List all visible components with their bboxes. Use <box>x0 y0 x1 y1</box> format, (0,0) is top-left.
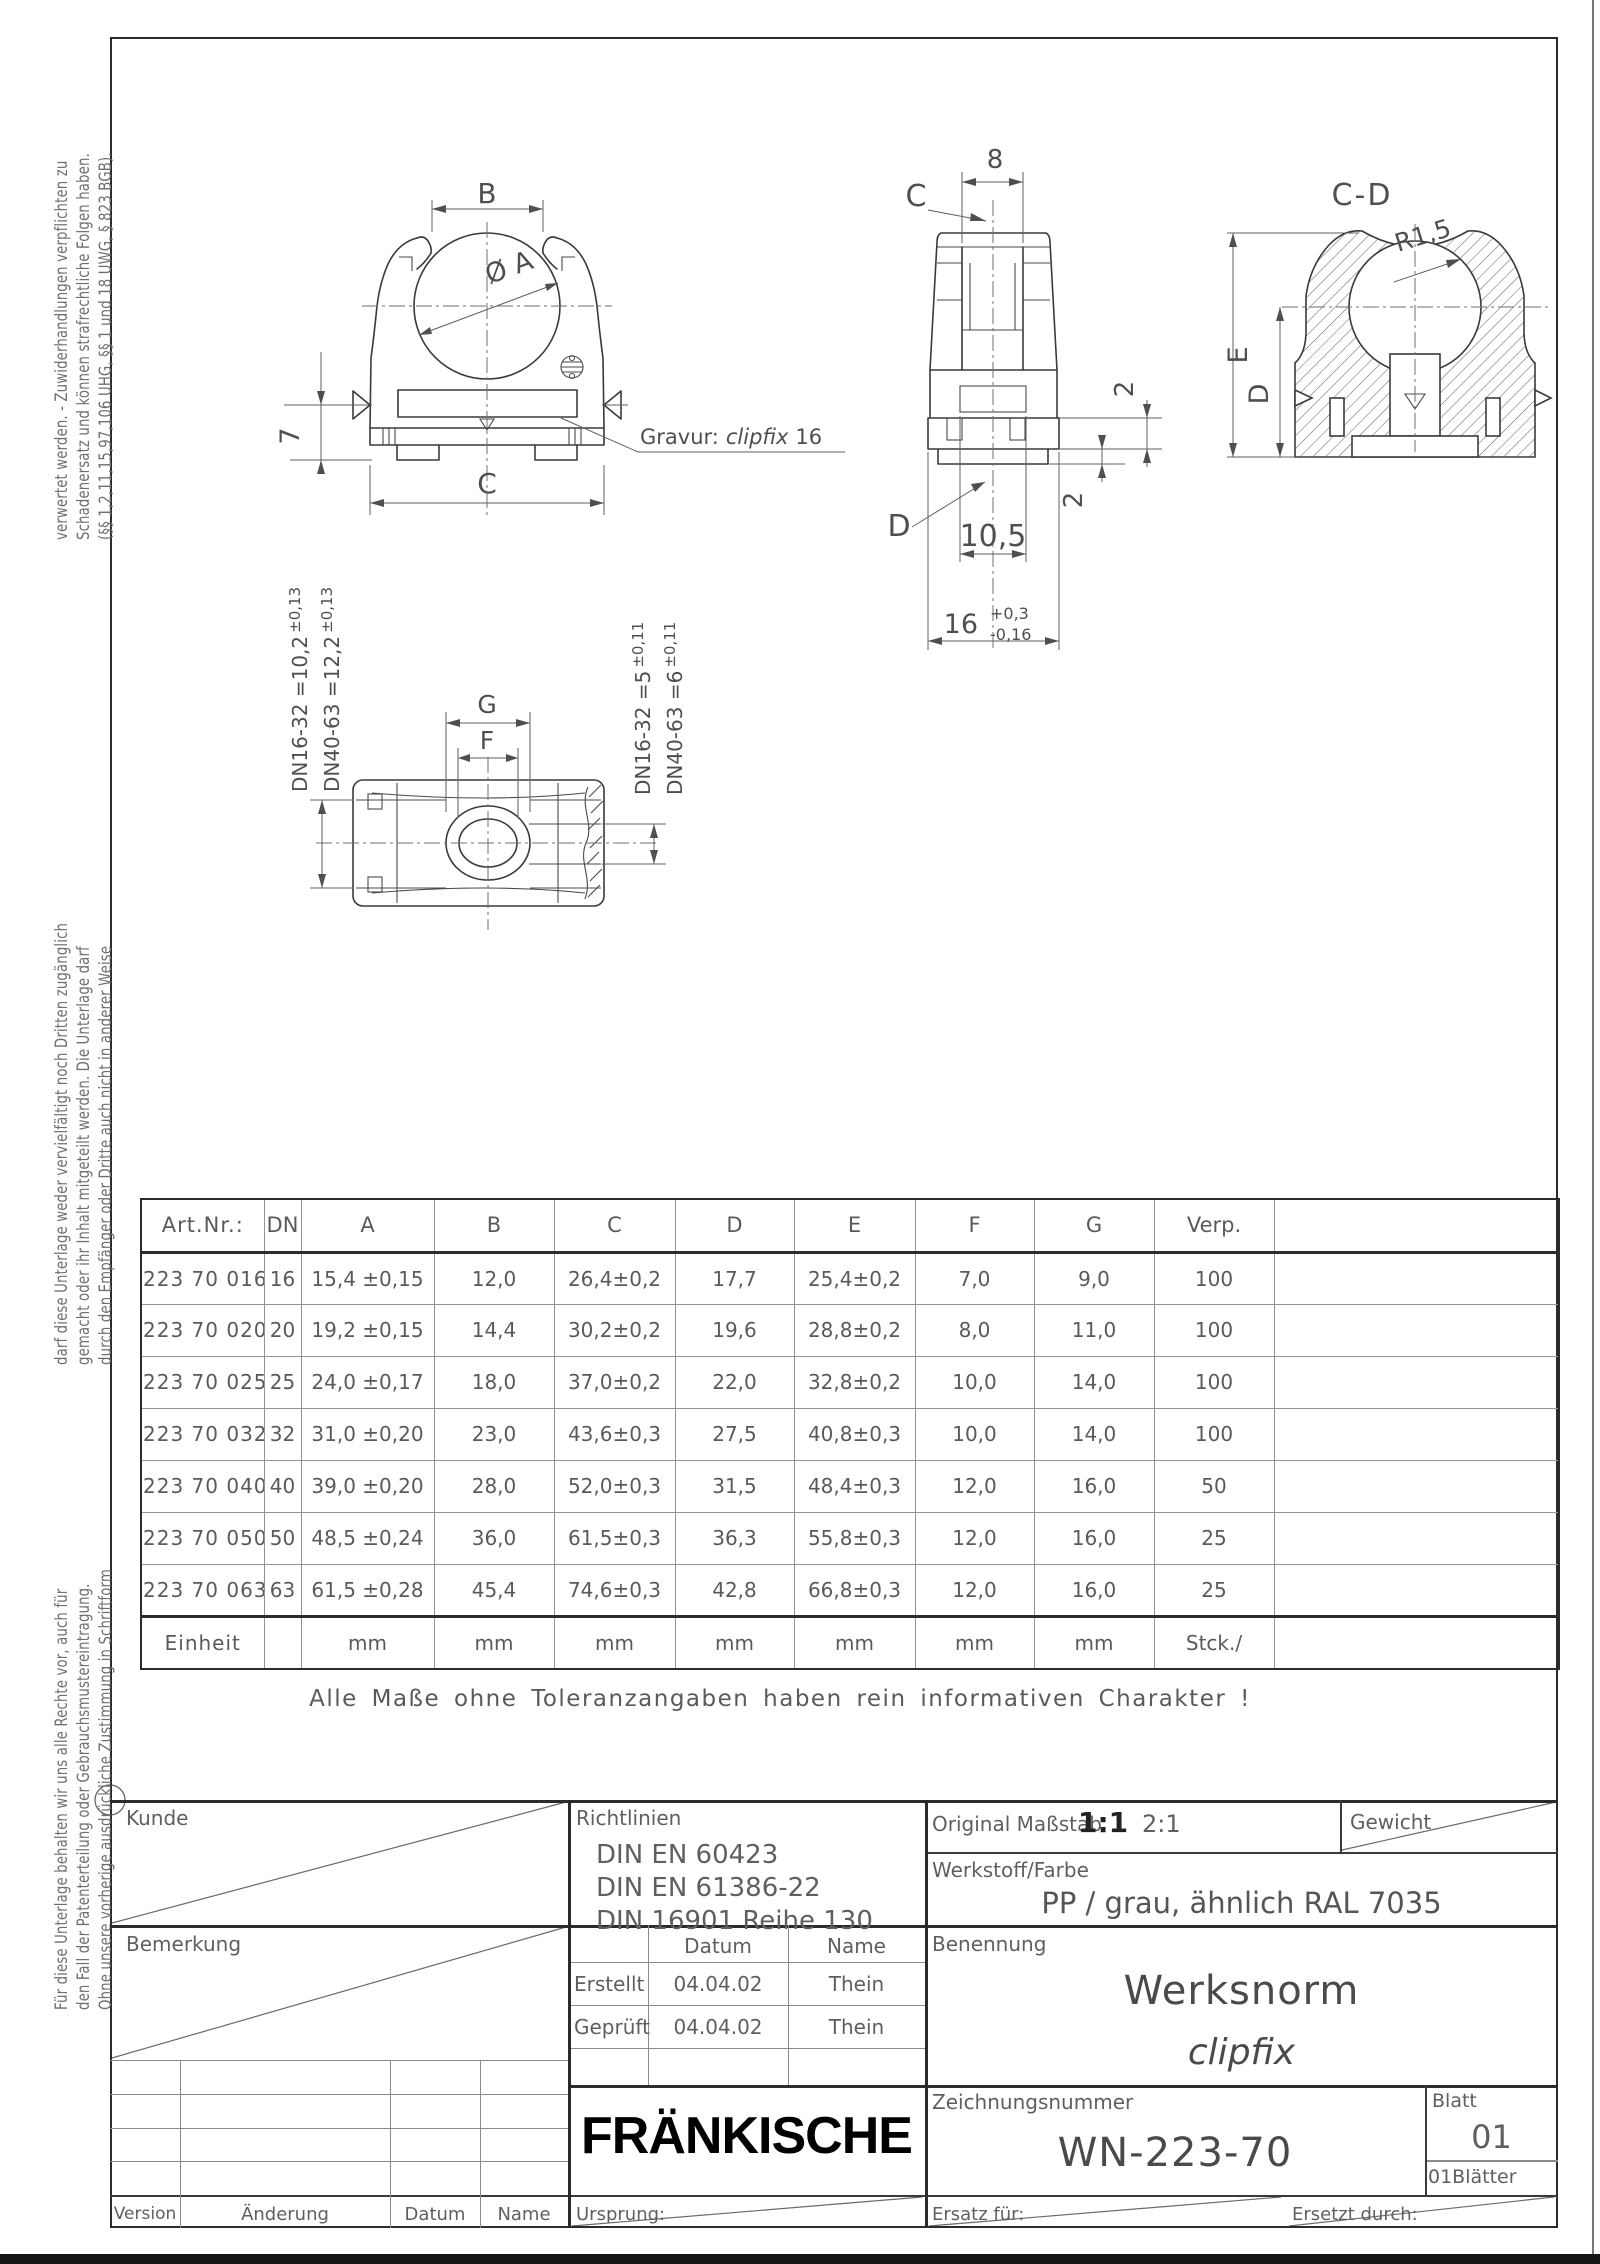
table-row: 223 70 0505048,5 ±0,2436,061,5±0,336,355… <box>141 1512 1559 1564</box>
table-cell: 50 <box>264 1512 301 1564</box>
table-header-cell: B <box>434 1199 554 1252</box>
massstab-secondary: 2:1 <box>1142 1810 1181 1838</box>
margin-note-top-line2: Schadenersatz und können strafrechtliche… <box>74 153 94 540</box>
table-cell: 223 70 050 <box>141 1512 264 1564</box>
table-cell: 16,0 <box>1034 1460 1154 1512</box>
tb-line <box>1340 1800 1342 1852</box>
table-cell: 74,6±0,3 <box>554 1564 675 1616</box>
table-cell: 223 70 016 <box>141 1252 264 1304</box>
tb-line <box>568 2005 925 2006</box>
richtlinie-din-2: DIN EN 61386-22 <box>596 1873 821 1903</box>
tb-line <box>480 2060 481 2228</box>
geprueft-datum: 04.04.02 <box>648 2015 788 2039</box>
table-cell: 14,0 <box>1034 1408 1154 1460</box>
table-cell: mm <box>554 1616 675 1669</box>
tb-line <box>110 2128 568 2129</box>
werkstoff-value: PP / grau, ähnlich RAL 7035 <box>925 1886 1558 1920</box>
table-cell: 7,0 <box>915 1252 1034 1304</box>
table-cell: 55,8±0,3 <box>794 1512 915 1564</box>
table-cell: 223 70 032 <box>141 1408 264 1460</box>
table-cell: 25 <box>264 1356 301 1408</box>
margin-note-bottom-line3: Ohne unsere vorherige ausdrückliche Zust… <box>96 1569 116 2010</box>
table-cell <box>264 1616 301 1669</box>
table-cell: 40,8±0,3 <box>794 1408 915 1460</box>
benennung-title: Werksnorm <box>925 1968 1558 2014</box>
table-cell: 14,4 <box>434 1304 554 1356</box>
tb-line <box>110 2161 568 2162</box>
table-cell: mm <box>915 1616 1034 1669</box>
table-cell: 20 <box>264 1304 301 1356</box>
name-header: Name <box>788 1934 925 1958</box>
ersetzt-label: Ersetzt durch: <box>1292 2204 1418 2225</box>
richtlinien-label: Richtlinien <box>576 1806 681 1830</box>
table-cell <box>1274 1460 1559 1512</box>
kunde-label: Kunde <box>126 1806 188 1830</box>
table-cell <box>1274 1252 1559 1304</box>
table-cell <box>1274 1512 1559 1564</box>
tb-line <box>110 2195 1558 2197</box>
table-cell: 32,8±0,2 <box>794 1356 915 1408</box>
table-cell: 32 <box>264 1408 301 1460</box>
margin-note-bottom-line1: Für diese Unterlage behalten wir uns all… <box>52 1589 72 2010</box>
aenderung-label: Änderung <box>180 2204 390 2225</box>
table-cell: 27,5 <box>675 1408 794 1460</box>
tb-line <box>1425 2160 1558 2162</box>
table-cell: 43,6±0,3 <box>554 1408 675 1460</box>
table-cell: mm <box>1034 1616 1154 1669</box>
table-cell: 12,0 <box>915 1564 1034 1616</box>
table-row: 223 70 0636361,5 ±0,2845,474,6±0,342,866… <box>141 1564 1559 1616</box>
tb-line <box>110 2060 568 2061</box>
tolerance-note: Alle Maße ohne Toleranzangaben haben rei… <box>140 1686 1420 1712</box>
tb-line <box>110 2094 568 2095</box>
benennung-label: Benennung <box>932 1932 1046 1956</box>
zeichnungsnummer-label: Zeichnungsnummer <box>932 2090 1133 2114</box>
tb-line <box>568 1962 925 1963</box>
table-cell: 66,8±0,3 <box>794 1564 915 1616</box>
table-cell: 61,5 ±0,28 <box>301 1564 434 1616</box>
table-cell: 100 <box>1154 1252 1274 1304</box>
table-cell <box>1274 1304 1559 1356</box>
table-cell: 39,0 ±0,20 <box>301 1460 434 1512</box>
tb-line <box>568 2085 1558 2088</box>
table-cell: 18,0 <box>434 1356 554 1408</box>
table-cell: 30,2±0,2 <box>554 1304 675 1356</box>
table-cell: Stck./ <box>1154 1616 1274 1669</box>
table-cell: 14,0 <box>1034 1356 1154 1408</box>
datum-label: Datum <box>390 2204 480 2225</box>
table-cell: 12,0 <box>915 1460 1034 1512</box>
table-cell: 37,0±0,2 <box>554 1356 675 1408</box>
erstellt-name: Thein <box>788 1972 925 1996</box>
bemerkung-label: Bemerkung <box>126 1932 241 1956</box>
massstab-primary: 1:1 <box>1078 1806 1128 1839</box>
table-cell: 24,0 ±0,17 <box>301 1356 434 1408</box>
table-cell: 40 <box>264 1460 301 1512</box>
table-header-cell: A <box>301 1199 434 1252</box>
zeichnungsnummer-value: WN-223-70 <box>925 2130 1425 2176</box>
table-cell: 223 70 025 <box>141 1356 264 1408</box>
table-header-cell: C <box>554 1199 675 1252</box>
table-cell: 48,4±0,3 <box>794 1460 915 1512</box>
table-cell: 8,0 <box>915 1304 1034 1356</box>
table-row: 223 70 0323231,0 ±0,2023,043,6±0,327,540… <box>141 1408 1559 1460</box>
table-cell: 19,2 ±0,15 <box>301 1304 434 1356</box>
scan-artifact-bar <box>0 2254 1600 2264</box>
table-cell: 31,5 <box>675 1460 794 1512</box>
table-row: EinheitmmmmmmmmmmmmmmStck./ <box>141 1616 1559 1669</box>
table-cell: 19,6 <box>675 1304 794 1356</box>
table-cell: 25,4±0,2 <box>794 1252 915 1304</box>
table-cell: 26,4±0,2 <box>554 1252 675 1304</box>
table-header-row: Art.Nr.:DNABCDEFGVerp. <box>141 1199 1559 1252</box>
table-cell: 25 <box>1154 1564 1274 1616</box>
table-row: 223 70 0161615,4 ±0,1512,026,4±0,217,725… <box>141 1252 1559 1304</box>
table-cell: 28,0 <box>434 1460 554 1512</box>
table-cell: 12,0 <box>915 1512 1034 1564</box>
erstellt-label: Erstellt <box>574 1972 644 1996</box>
name-label: Name <box>480 2204 568 2225</box>
table-cell: 45,4 <box>434 1564 554 1616</box>
geprueft-name: Thein <box>788 2015 925 2039</box>
table-cell: 16,0 <box>1034 1512 1154 1564</box>
table-row: 223 70 0252524,0 ±0,1718,037,0±0,222,032… <box>141 1356 1559 1408</box>
table-cell: 9,0 <box>1034 1252 1154 1304</box>
table-cell: mm <box>675 1616 794 1669</box>
tb-line <box>390 2060 391 2228</box>
table-cell: mm <box>434 1616 554 1669</box>
table-cell: 48,5 ±0,24 <box>301 1512 434 1564</box>
table-cell <box>1274 1564 1559 1616</box>
table-cell: 100 <box>1154 1304 1274 1356</box>
geprueft-label: Geprüft <box>574 2015 650 2039</box>
blatt-label: Blatt <box>1432 2090 1477 2112</box>
table-cell: 50 <box>1154 1460 1274 1512</box>
margin-note-middle-line1: darf diese Unterlage weder vervielfältig… <box>52 923 72 1365</box>
table-cell: mm <box>794 1616 915 1669</box>
table-cell: 10,0 <box>915 1408 1034 1460</box>
margin-note-top-line3: (§§ 1,2,11,15,97,106 UHG, §§ 1 und 18 UW… <box>96 152 116 540</box>
massstab-label: Original Maßstab <box>932 1812 1102 1836</box>
table-cell: 15,4 ±0,15 <box>301 1252 434 1304</box>
margin-note-middle-line2: gemacht oder ihr Inhalt mitgeteilt werde… <box>74 946 94 1365</box>
table-cell: 42,8 <box>675 1564 794 1616</box>
table-header-cell: Verp. <box>1154 1199 1274 1252</box>
werkstoff-label: Werkstoff/Farbe <box>932 1858 1089 1882</box>
richtlinie-din-3: DIN 16901 Reihe 130 <box>596 1906 873 1936</box>
erstellt-datum: 04.04.02 <box>648 1972 788 1996</box>
richtlinie-din-1: DIN EN 60423 <box>596 1840 778 1870</box>
table-cell: 223 70 020 <box>141 1304 264 1356</box>
margin-note-top-line1: verwertet werden. - Zuwiderhandlungen ve… <box>52 161 72 540</box>
tb-line <box>180 2060 181 2228</box>
scanned-technical-drawing-sheet: { "colors": {"paper":"#ffffff","line_dar… <box>0 0 1600 2264</box>
table-cell: 23,0 <box>434 1408 554 1460</box>
table-cell: 22,0 <box>675 1356 794 1408</box>
table-cell: 223 70 040 <box>141 1460 264 1512</box>
table-header-cell: DN <box>264 1199 301 1252</box>
table-cell: 100 <box>1154 1408 1274 1460</box>
table-cell: 10,0 <box>915 1356 1034 1408</box>
table-header-cell: G <box>1034 1199 1154 1252</box>
tb-line <box>925 1852 1558 1854</box>
table-header-cell: Art.Nr.: <box>141 1199 264 1252</box>
datum-header: Datum <box>648 1934 788 1958</box>
tb-line <box>568 2048 925 2049</box>
table-cell: 36,0 <box>434 1512 554 1564</box>
version-label: Version <box>110 2204 180 2224</box>
table-cell: 11,0 <box>1034 1304 1154 1356</box>
company-logo: FRÄNKISCHE <box>568 2106 925 2166</box>
ursprung-label: Ursprung: <box>576 2204 665 2225</box>
table-cell <box>1274 1356 1559 1408</box>
table-cell: 25 <box>1154 1512 1274 1564</box>
table-cell: 17,7 <box>675 1252 794 1304</box>
table-cell: 223 70 063 <box>141 1564 264 1616</box>
table-cell <box>1274 1616 1559 1669</box>
ersatz-label: Ersatz für: <box>932 2204 1024 2225</box>
table-row: 223 70 0404039,0 ±0,2028,052,0±0,331,548… <box>141 1460 1559 1512</box>
margin-note-bottom-line2: den Fall der Patenterteilung oder Gebrau… <box>74 1583 94 2010</box>
table-header-cell <box>1274 1199 1559 1252</box>
table-cell: 100 <box>1154 1356 1274 1408</box>
table-header-cell: E <box>794 1199 915 1252</box>
table-cell: 16,0 <box>1034 1564 1154 1616</box>
blaetter-value: 01Blätter <box>1428 2166 1517 2188</box>
paper-edge-line <box>1592 0 1594 2264</box>
margin-note-middle-line3: durch den Empfänger oder Dritte auch nic… <box>96 946 116 1365</box>
table-cell: 61,5±0,3 <box>554 1512 675 1564</box>
table-cell: mm <box>301 1616 434 1669</box>
table-cell: Einheit <box>141 1616 264 1669</box>
table-cell: 63 <box>264 1564 301 1616</box>
table-row: 223 70 0202019,2 ±0,1514,430,2±0,219,628… <box>141 1304 1559 1356</box>
table-cell: 31,0 ±0,20 <box>301 1408 434 1460</box>
table-header-cell: D <box>675 1199 794 1252</box>
table-cell: 12,0 <box>434 1252 554 1304</box>
table-cell: 28,8±0,2 <box>794 1304 915 1356</box>
table-cell: 52,0±0,3 <box>554 1460 675 1512</box>
dimension-table: Art.Nr.:DNABCDEFGVerp.223 70 0161615,4 ±… <box>140 1198 1560 1670</box>
table-cell <box>1274 1408 1559 1460</box>
table-cell: 16 <box>264 1252 301 1304</box>
blatt-value: 01 <box>1425 2118 1558 2156</box>
benennung-subtitle: clipfix <box>925 2032 1558 2073</box>
gewicht-label: Gewicht <box>1350 1810 1431 1834</box>
table-header-cell: F <box>915 1199 1034 1252</box>
table-cell: 36,3 <box>675 1512 794 1564</box>
